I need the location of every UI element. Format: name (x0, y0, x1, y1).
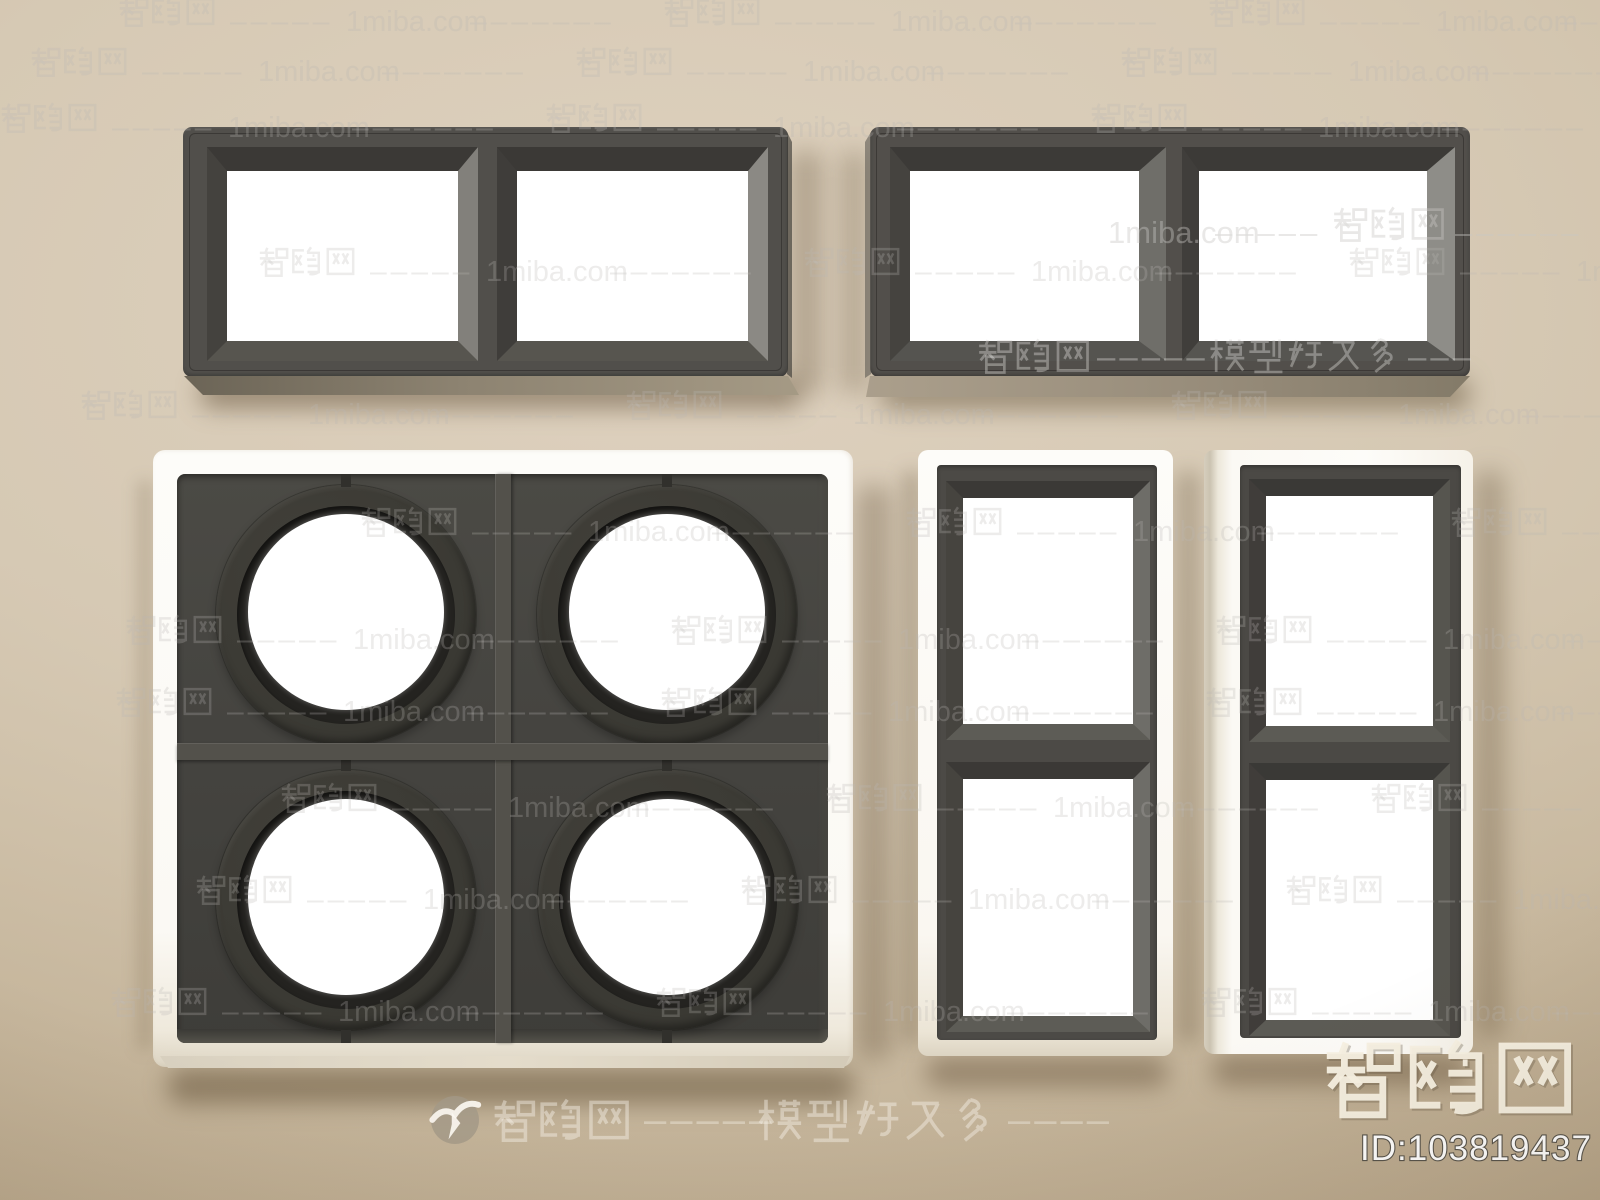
svg-text:–––––: ––––– (1320, 5, 1423, 38)
svg-text:–––––––: ––––––– (462, 995, 607, 1028)
svg-text:1miba.com: 1miba.com (1348, 56, 1490, 88)
svg-text:–––––: ––––– (915, 255, 1018, 288)
svg-text:–––––: ––––– (1202, 111, 1305, 144)
svg-text:1miba.com: 1miba.com (883, 996, 1025, 1028)
svg-text:–––––: ––––– (227, 695, 330, 728)
svg-text:–––––––: ––––––– (1092, 883, 1237, 916)
svg-text:–––––––: ––––––– (1560, 5, 1600, 38)
svg-text:–––––: ––––– (767, 995, 870, 1028)
svg-text:1miba.com: 1miba.com (258, 56, 400, 88)
svg-text:–––––––: ––––––– (712, 515, 857, 548)
svg-text:1miba.com: 1miba.com (1133, 516, 1275, 548)
svg-text:–––––: ––––– (657, 111, 760, 144)
svg-text:–––––––: ––––––– (1177, 791, 1322, 824)
svg-text:–––––––: ––––––– (547, 883, 692, 916)
svg-text:1miba.com: 1miba.com (898, 624, 1040, 656)
svg-text:–––––: ––––– (782, 623, 885, 656)
svg-text:1miba.com: 1miba.com (1031, 256, 1173, 288)
svg-text:1miba.com: 1miba.com (1318, 112, 1460, 144)
svg-text:–––––––: ––––––– (927, 55, 1072, 88)
svg-text:1miba.com: 1miba.com (968, 884, 1110, 916)
svg-text:–––––: ––––– (1397, 883, 1500, 916)
svg-text:––––––: –––––– (1455, 215, 1582, 250)
svg-text:–––––––: ––––––– (1257, 515, 1402, 548)
svg-text:–––––: ––––– (142, 55, 245, 88)
svg-text:–––––: ––––– (1460, 255, 1563, 288)
svg-text:–––––––: ––––––– (1552, 995, 1600, 1028)
svg-text:–––––: ––––– (1017, 515, 1120, 548)
svg-text:1miba.com: 1miba.com (803, 56, 945, 88)
svg-text:–––––: ––––– (370, 255, 473, 288)
svg-text:1miba.com: 1miba.com (1398, 399, 1540, 431)
svg-text:–––––––: ––––––– (467, 695, 612, 728)
svg-text:1miba.com: 1miba.com (1576, 256, 1600, 288)
svg-text:–––––: ––––– (737, 398, 840, 431)
svg-text:1miba.com: 1miba.com (888, 696, 1030, 728)
svg-text:–––––: ––––– (1482, 791, 1585, 824)
svg-text:1miba.com: 1miba.com (773, 112, 915, 144)
svg-text:1miba.com: 1miba.com (1433, 696, 1575, 728)
svg-text:–––––: ––––– (687, 55, 790, 88)
svg-text:–––––––: ––––––– (382, 55, 527, 88)
svg-text:1miba.com: 1miba.com (346, 6, 488, 38)
svg-text:–––––––: ––––––– (897, 111, 1042, 144)
svg-text:–––––: ––––– (852, 883, 955, 916)
svg-text:–––––: ––––– (1282, 398, 1385, 431)
svg-text:–––––: ––––– (112, 111, 215, 144)
svg-text:–––––––: ––––––– (1012, 695, 1157, 728)
svg-text:–––––: ––––– (1312, 995, 1415, 1028)
svg-text:–––––––: ––––––– (1567, 623, 1600, 656)
svg-text:–––––––: ––––––– (632, 791, 777, 824)
svg-text:1miba.com: 1miba.com (308, 399, 450, 431)
svg-text:1miba.com: 1miba.com (1513, 884, 1600, 916)
svg-text:1miba.com: 1miba.com (1436, 6, 1578, 38)
svg-text:–––––––: ––––––– (1472, 55, 1600, 88)
svg-text:1miba.com: 1miba.com (343, 696, 485, 728)
svg-text:1miba.com: 1miba.com (1428, 996, 1570, 1028)
svg-text:1miba.com: 1miba.com (1443, 624, 1585, 656)
svg-text:–––––––: ––––––– (1015, 5, 1160, 38)
svg-text:–––––: ––––– (1097, 338, 1209, 375)
svg-text:–––––––: ––––––– (1522, 398, 1600, 431)
svg-text:–––––––: ––––––– (432, 398, 577, 431)
svg-text:–––––––: ––––––– (1022, 623, 1167, 656)
svg-text:–––––––: ––––––– (477, 623, 622, 656)
svg-text:–––: ––– (1408, 338, 1475, 375)
svg-text:–––––: ––––– (1327, 623, 1430, 656)
svg-text:–––––: ––––– (307, 883, 410, 916)
svg-text:1miba.com: 1miba.com (891, 6, 1033, 38)
svg-text:–––––––: ––––––– (610, 255, 755, 288)
svg-text:–––––––: ––––––– (1007, 995, 1152, 1028)
svg-text:–––––––: ––––––– (352, 111, 497, 144)
svg-text:–––––: ––––– (772, 695, 875, 728)
svg-text:–––––: ––––– (472, 515, 575, 548)
svg-text:1miba.com: 1miba.com (353, 624, 495, 656)
svg-text:1miba.com: 1miba.com (853, 399, 995, 431)
svg-text:1miba.com: 1miba.com (486, 256, 628, 288)
svg-text:1miba.com: 1miba.com (228, 112, 370, 144)
svg-text:1miba.com: 1miba.com (508, 792, 650, 824)
svg-text:–––––––: ––––––– (470, 5, 615, 38)
svg-text:–––––: ––––– (192, 398, 295, 431)
svg-text:1miba.com: 1miba.com (338, 996, 480, 1028)
svg-text:–––––––: ––––––– (1155, 255, 1300, 288)
svg-text:–––––: ––––– (1232, 55, 1335, 88)
svg-text:–––––: ––––– (1215, 215, 1321, 250)
svg-text:–––––: ––––– (237, 623, 340, 656)
svg-text:1miba.com: 1miba.com (588, 516, 730, 548)
svg-text:ID:103819437: ID:103819437 (1360, 1129, 1592, 1168)
svg-text:–––––: ––––– (1562, 515, 1600, 548)
svg-text:–––––: ––––– (230, 5, 333, 38)
svg-text:–––––: ––––– (1317, 695, 1420, 728)
svg-text:–––––––: ––––––– (1557, 695, 1600, 728)
svg-text:–––––: ––––– (644, 1098, 775, 1142)
svg-text:–––––––: ––––––– (977, 398, 1122, 431)
svg-text:–––––––: ––––––– (1442, 111, 1587, 144)
svg-text:–––––: ––––– (222, 995, 325, 1028)
svg-text:–––––: ––––– (775, 5, 878, 38)
svg-text:––––: –––– (1008, 1098, 1113, 1142)
svg-text:–––––: ––––– (392, 791, 495, 824)
svg-text:1miba.com: 1miba.com (1053, 792, 1195, 824)
svg-text:1miba.com: 1miba.com (423, 884, 565, 916)
svg-text:–––––: ––––– (937, 791, 1040, 824)
